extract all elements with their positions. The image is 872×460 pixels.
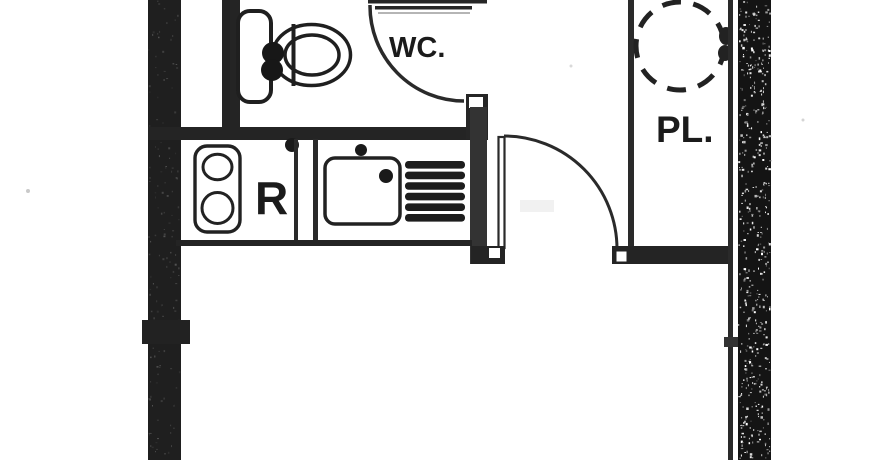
svg-text:PL.: PL.	[656, 109, 714, 150]
svg-text:WC.: WC.	[389, 32, 445, 64]
svg-text:R: R	[255, 172, 288, 224]
